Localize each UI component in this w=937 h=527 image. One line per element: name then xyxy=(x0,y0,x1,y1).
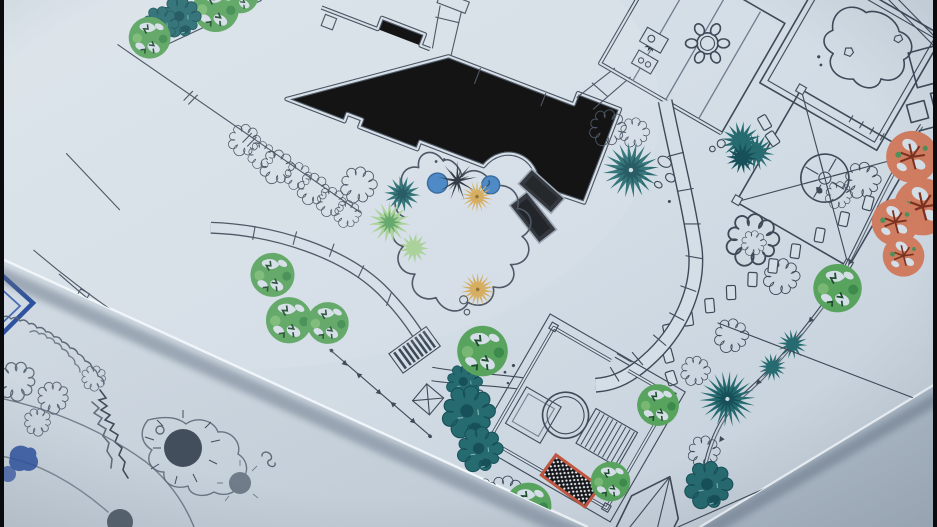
pillar-bar-right xyxy=(933,0,937,527)
plan-photo xyxy=(0,0,937,527)
video-frame xyxy=(0,0,937,527)
pillar-bar-left xyxy=(0,0,4,527)
vignette xyxy=(0,0,937,527)
